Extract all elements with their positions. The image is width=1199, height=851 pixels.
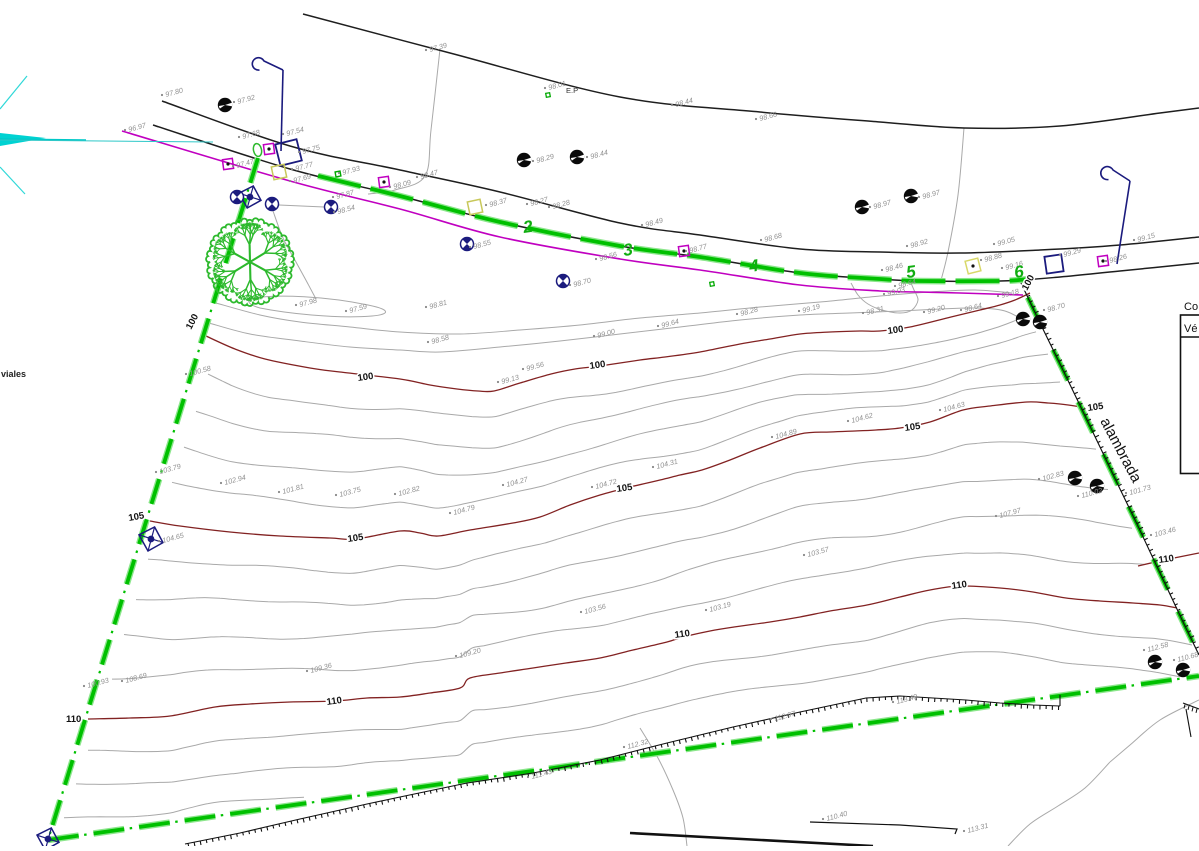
svg-text:E.P: E.P [566, 86, 578, 95]
svg-text:Co: Co [1184, 301, 1198, 313]
svg-text:105: 105 [904, 421, 922, 434]
svg-text:110: 110 [1158, 553, 1175, 566]
svg-text:Vé: Vé [1184, 323, 1197, 335]
svg-text:110: 110 [66, 714, 81, 725]
svg-text:viales: viales [1, 369, 26, 379]
svg-text:110: 110 [951, 579, 968, 592]
svg-text:100: 100 [589, 359, 606, 372]
svg-text:105: 105 [347, 532, 365, 545]
svg-text:105: 105 [1087, 401, 1105, 414]
svg-text:100: 100 [357, 371, 374, 384]
svg-text:110: 110 [674, 628, 691, 641]
svg-text:100: 100 [887, 324, 904, 337]
svg-text:105: 105 [616, 482, 634, 495]
svg-text:110: 110 [326, 695, 343, 708]
